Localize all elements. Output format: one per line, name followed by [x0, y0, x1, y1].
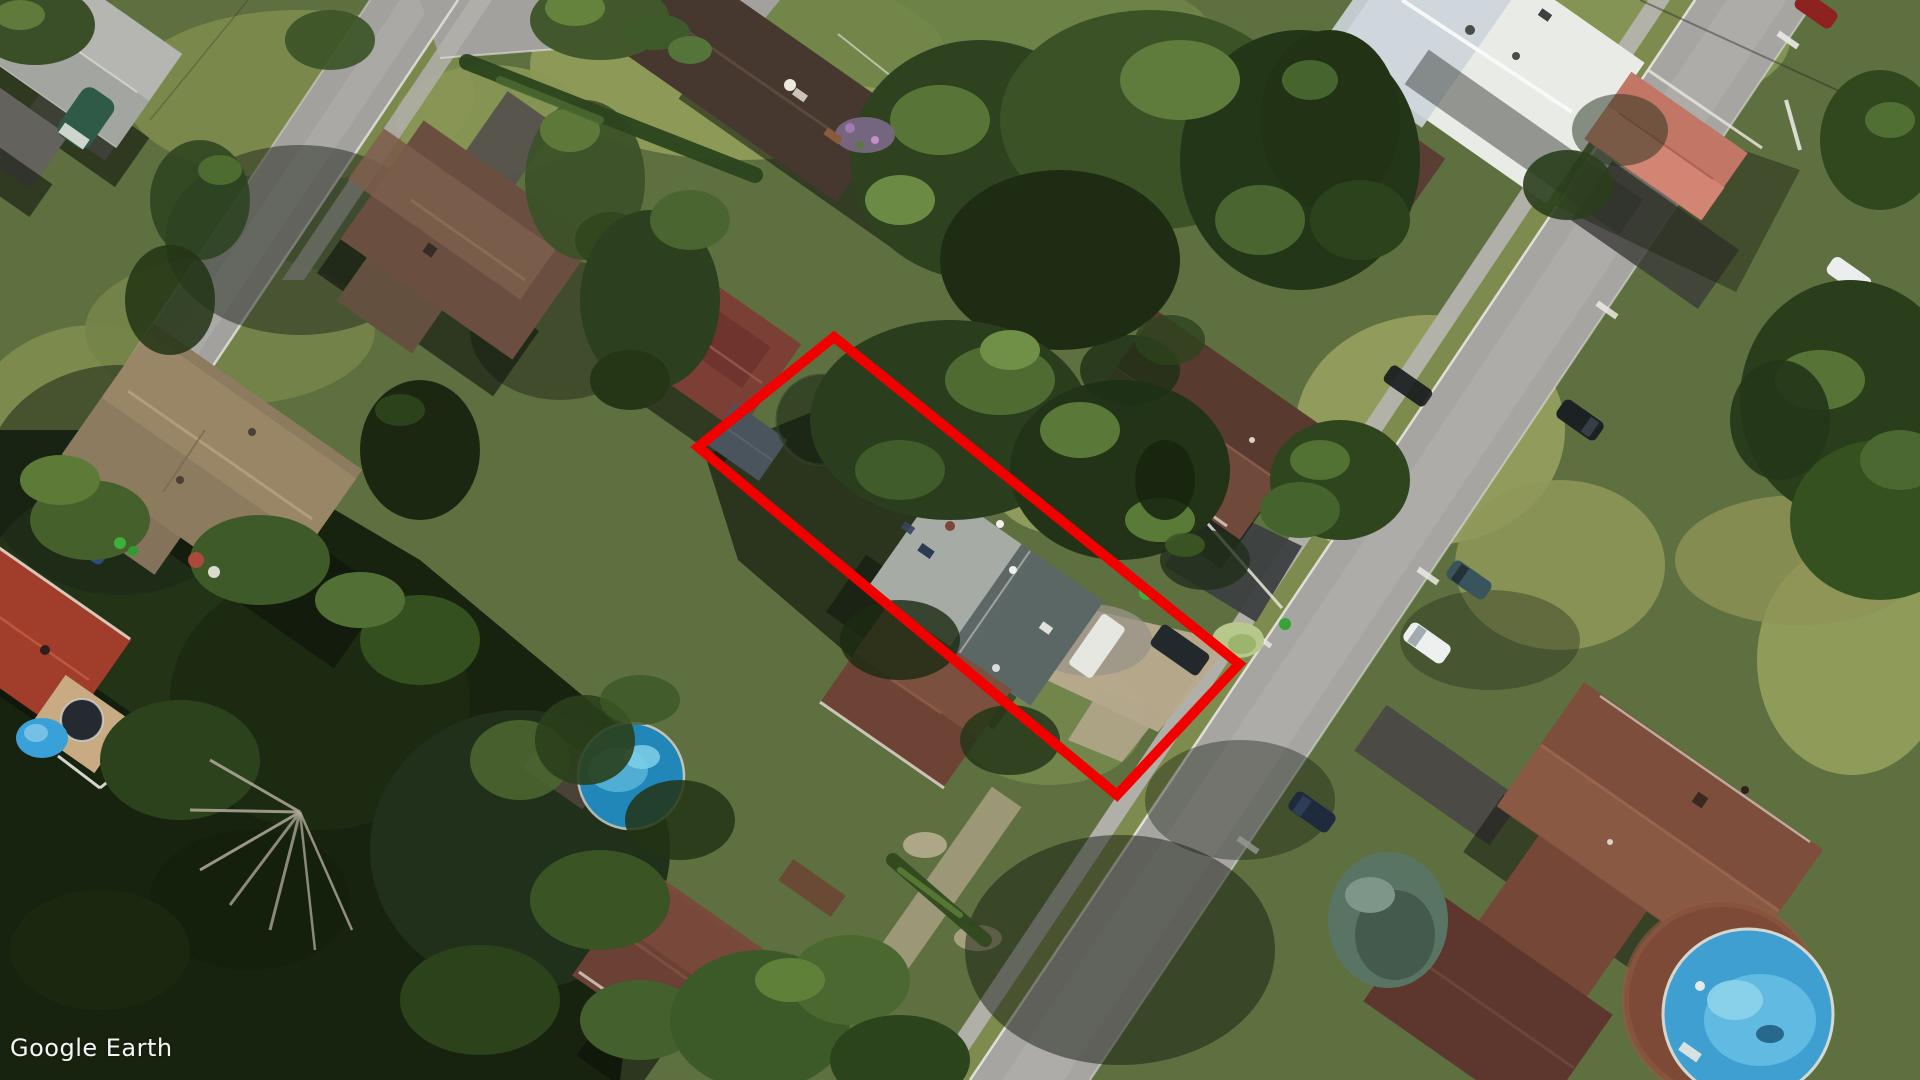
- recycling-bin: [1279, 618, 1291, 630]
- tree-canopy: [1290, 440, 1350, 480]
- tree-canopy: [1040, 402, 1120, 458]
- tree-canopy: [1260, 30, 1400, 210]
- patio-table: [208, 566, 220, 578]
- pool-water: [1707, 980, 1763, 1020]
- roof-vent: [1465, 25, 1475, 35]
- satellite-view: Google Earth: [0, 0, 1920, 1080]
- tree-canopy: [625, 780, 735, 860]
- tree-canopy: [1310, 180, 1410, 260]
- pool-item: [1756, 1025, 1784, 1043]
- roof-vent: [996, 520, 1004, 528]
- roof-vent: [992, 664, 1000, 672]
- scene-svg: [0, 0, 1920, 1080]
- patio-umbrella: [188, 552, 204, 568]
- tree-canopy: [1282, 60, 1338, 100]
- garden-flowers: [845, 123, 855, 133]
- tree-canopy: [375, 394, 425, 426]
- pool-ladder: [1695, 981, 1705, 991]
- tree-canopy: [530, 850, 670, 950]
- tree-canopy: [20, 455, 100, 505]
- tree-canopy: [1865, 102, 1915, 138]
- roof-vent: [1607, 839, 1613, 845]
- tree-canopy: [1523, 150, 1613, 220]
- forest-blob: [10, 890, 190, 1010]
- roof-vent: [1512, 52, 1520, 60]
- roof-vent: [176, 476, 184, 484]
- tree-canopy: [1135, 440, 1195, 520]
- tree-canopy: [865, 175, 935, 225]
- tree-canopy: [600, 675, 680, 725]
- tree-canopy: [1120, 40, 1240, 120]
- tree-canopy: [198, 155, 242, 185]
- tree-canopy: [315, 572, 405, 628]
- shrub: [1228, 634, 1256, 654]
- tree-canopy: [980, 330, 1040, 370]
- tree-canopy: [1730, 360, 1830, 480]
- tree-canopy: [1135, 315, 1205, 365]
- tree-canopy: [190, 515, 330, 605]
- shrub: [668, 36, 712, 64]
- garden-bed: [835, 117, 895, 153]
- roof-vent: [40, 645, 50, 655]
- tree-canopy: [285, 10, 375, 70]
- tree-canopy: [1215, 185, 1305, 255]
- dead-tree-branch: [190, 810, 300, 812]
- chimney: [945, 521, 955, 531]
- tree-canopy: [1260, 482, 1340, 538]
- garden-flowers: [856, 141, 864, 149]
- path-patch: [903, 832, 947, 858]
- tree-canopy: [400, 945, 560, 1055]
- roof-vent: [248, 428, 256, 436]
- tree-canopy: [590, 350, 670, 410]
- tree-canopy: [755, 958, 825, 1002]
- tree-canopy: [150, 140, 250, 260]
- recycling-bin: [128, 546, 138, 556]
- spruce-tree: [1345, 877, 1395, 913]
- tree-canopy: [100, 700, 260, 820]
- tree-canopy: [890, 85, 990, 155]
- tree-canopy: [855, 440, 945, 500]
- garden-flowers: [871, 136, 879, 144]
- patio-umbrella: [784, 79, 796, 91]
- pool-water: [24, 724, 48, 742]
- tree-shadow: [965, 835, 1275, 1065]
- tree-canopy: [1165, 533, 1205, 557]
- tree-canopy: [125, 245, 215, 355]
- google-earth-watermark: Google Earth: [10, 1034, 173, 1062]
- roof-vent: [1741, 786, 1749, 794]
- roof-vent: [1009, 566, 1017, 574]
- recycling-bin: [114, 537, 126, 549]
- roof-vent: [1249, 437, 1255, 443]
- tree-canopy: [650, 190, 730, 250]
